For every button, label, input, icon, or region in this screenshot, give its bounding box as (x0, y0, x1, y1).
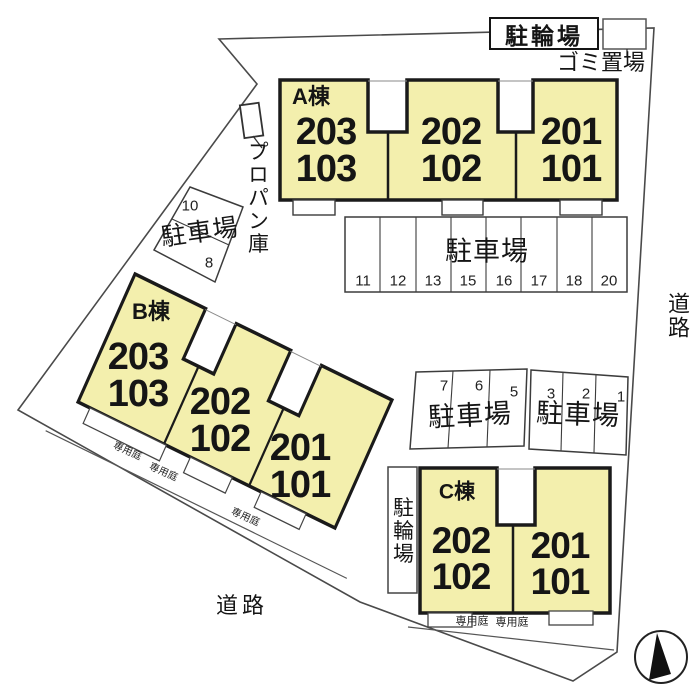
building-c-label: C棟 (439, 482, 475, 503)
parking-space-6: 6 (475, 379, 483, 394)
parking-space-18: 18 (566, 274, 583, 289)
unit-b-202-102: 202 102 (190, 384, 250, 458)
road-label-south: 道路 (216, 595, 268, 617)
unit-upper-number: 202 (190, 384, 250, 421)
parking-space-7: 7 (440, 379, 448, 394)
unit-lower-number: 101 (531, 564, 590, 600)
unit-upper-number: 202 (432, 523, 491, 559)
unit-a-202-102: 202 102 (421, 114, 481, 188)
unit-upper-number: 203 (296, 114, 356, 151)
site-plan-drawing (0, 0, 700, 700)
parking-space-5: 5 (510, 385, 518, 400)
unit-upper-number: 201 (270, 430, 330, 467)
entrance-porch (293, 200, 335, 215)
unit-upper-number: 203 (108, 339, 168, 376)
unit-lower-number: 103 (296, 151, 356, 188)
parking-mid-right-label: 駐車場 (536, 400, 621, 430)
unit-c-202-102: 202 102 (432, 523, 491, 595)
parking-mid-left-label: 駐車場 (427, 400, 512, 431)
parking-row-label: 駐車場 (445, 239, 529, 266)
bicycle-parking-top-box: 駐輪場 (489, 17, 599, 50)
unit-upper-number: 201 (541, 114, 601, 151)
unit-a-201-101: 201 101 (541, 114, 601, 188)
unit-upper-number: 202 (421, 114, 481, 151)
unit-lower-number: 102 (432, 559, 491, 595)
unit-lower-number: 101 (270, 467, 330, 504)
parking-space-13: 13 (425, 274, 442, 289)
bicycle-parking-c-label: 駐輪場 (392, 497, 413, 566)
parking-space-15: 15 (460, 274, 477, 289)
unit-b-201-101: 201 101 (270, 430, 330, 504)
unit-b-203-103: 203 103 (108, 339, 168, 413)
building-a-label: A棟 (292, 86, 330, 108)
private-garden-label: 専用庭 (456, 617, 489, 628)
unit-lower-number: 102 (190, 421, 250, 458)
garbage-box (603, 19, 646, 49)
entrance-porch (560, 200, 602, 215)
private-garden-label: 専用庭 (496, 618, 529, 629)
parking-space-12: 12 (390, 274, 407, 289)
parking-space-8: 8 (205, 256, 213, 271)
site-plan: 駐輪場 ゴミ置場 プロパン庫 A棟 203 103 202 102 201 10… (0, 0, 700, 700)
propane-box (240, 103, 263, 138)
parking-space-20: 20 (601, 274, 618, 289)
bicycle-parking-top-label: 駐輪場 (505, 17, 583, 51)
parking-space-16: 16 (496, 274, 513, 289)
parking-space-17: 17 (531, 274, 548, 289)
unit-lower-number: 102 (421, 151, 481, 188)
unit-a-203-103: 203 103 (296, 114, 356, 188)
road-label-east: 道路 (666, 292, 688, 340)
parking-space-11: 11 (355, 274, 371, 289)
unit-upper-number: 201 (531, 528, 590, 564)
parking-space-10: 10 (182, 199, 199, 214)
unit-lower-number: 103 (108, 376, 168, 413)
unit-c-201-101: 201 101 (531, 528, 590, 600)
garbage-area-label: ゴミ置場 (557, 52, 645, 74)
entrance-porch (442, 200, 483, 215)
terrace (549, 611, 593, 625)
building-b-label: B棟 (132, 301, 170, 323)
propane-storage-label: プロパン庫 (247, 141, 268, 256)
unit-lower-number: 101 (541, 151, 601, 188)
